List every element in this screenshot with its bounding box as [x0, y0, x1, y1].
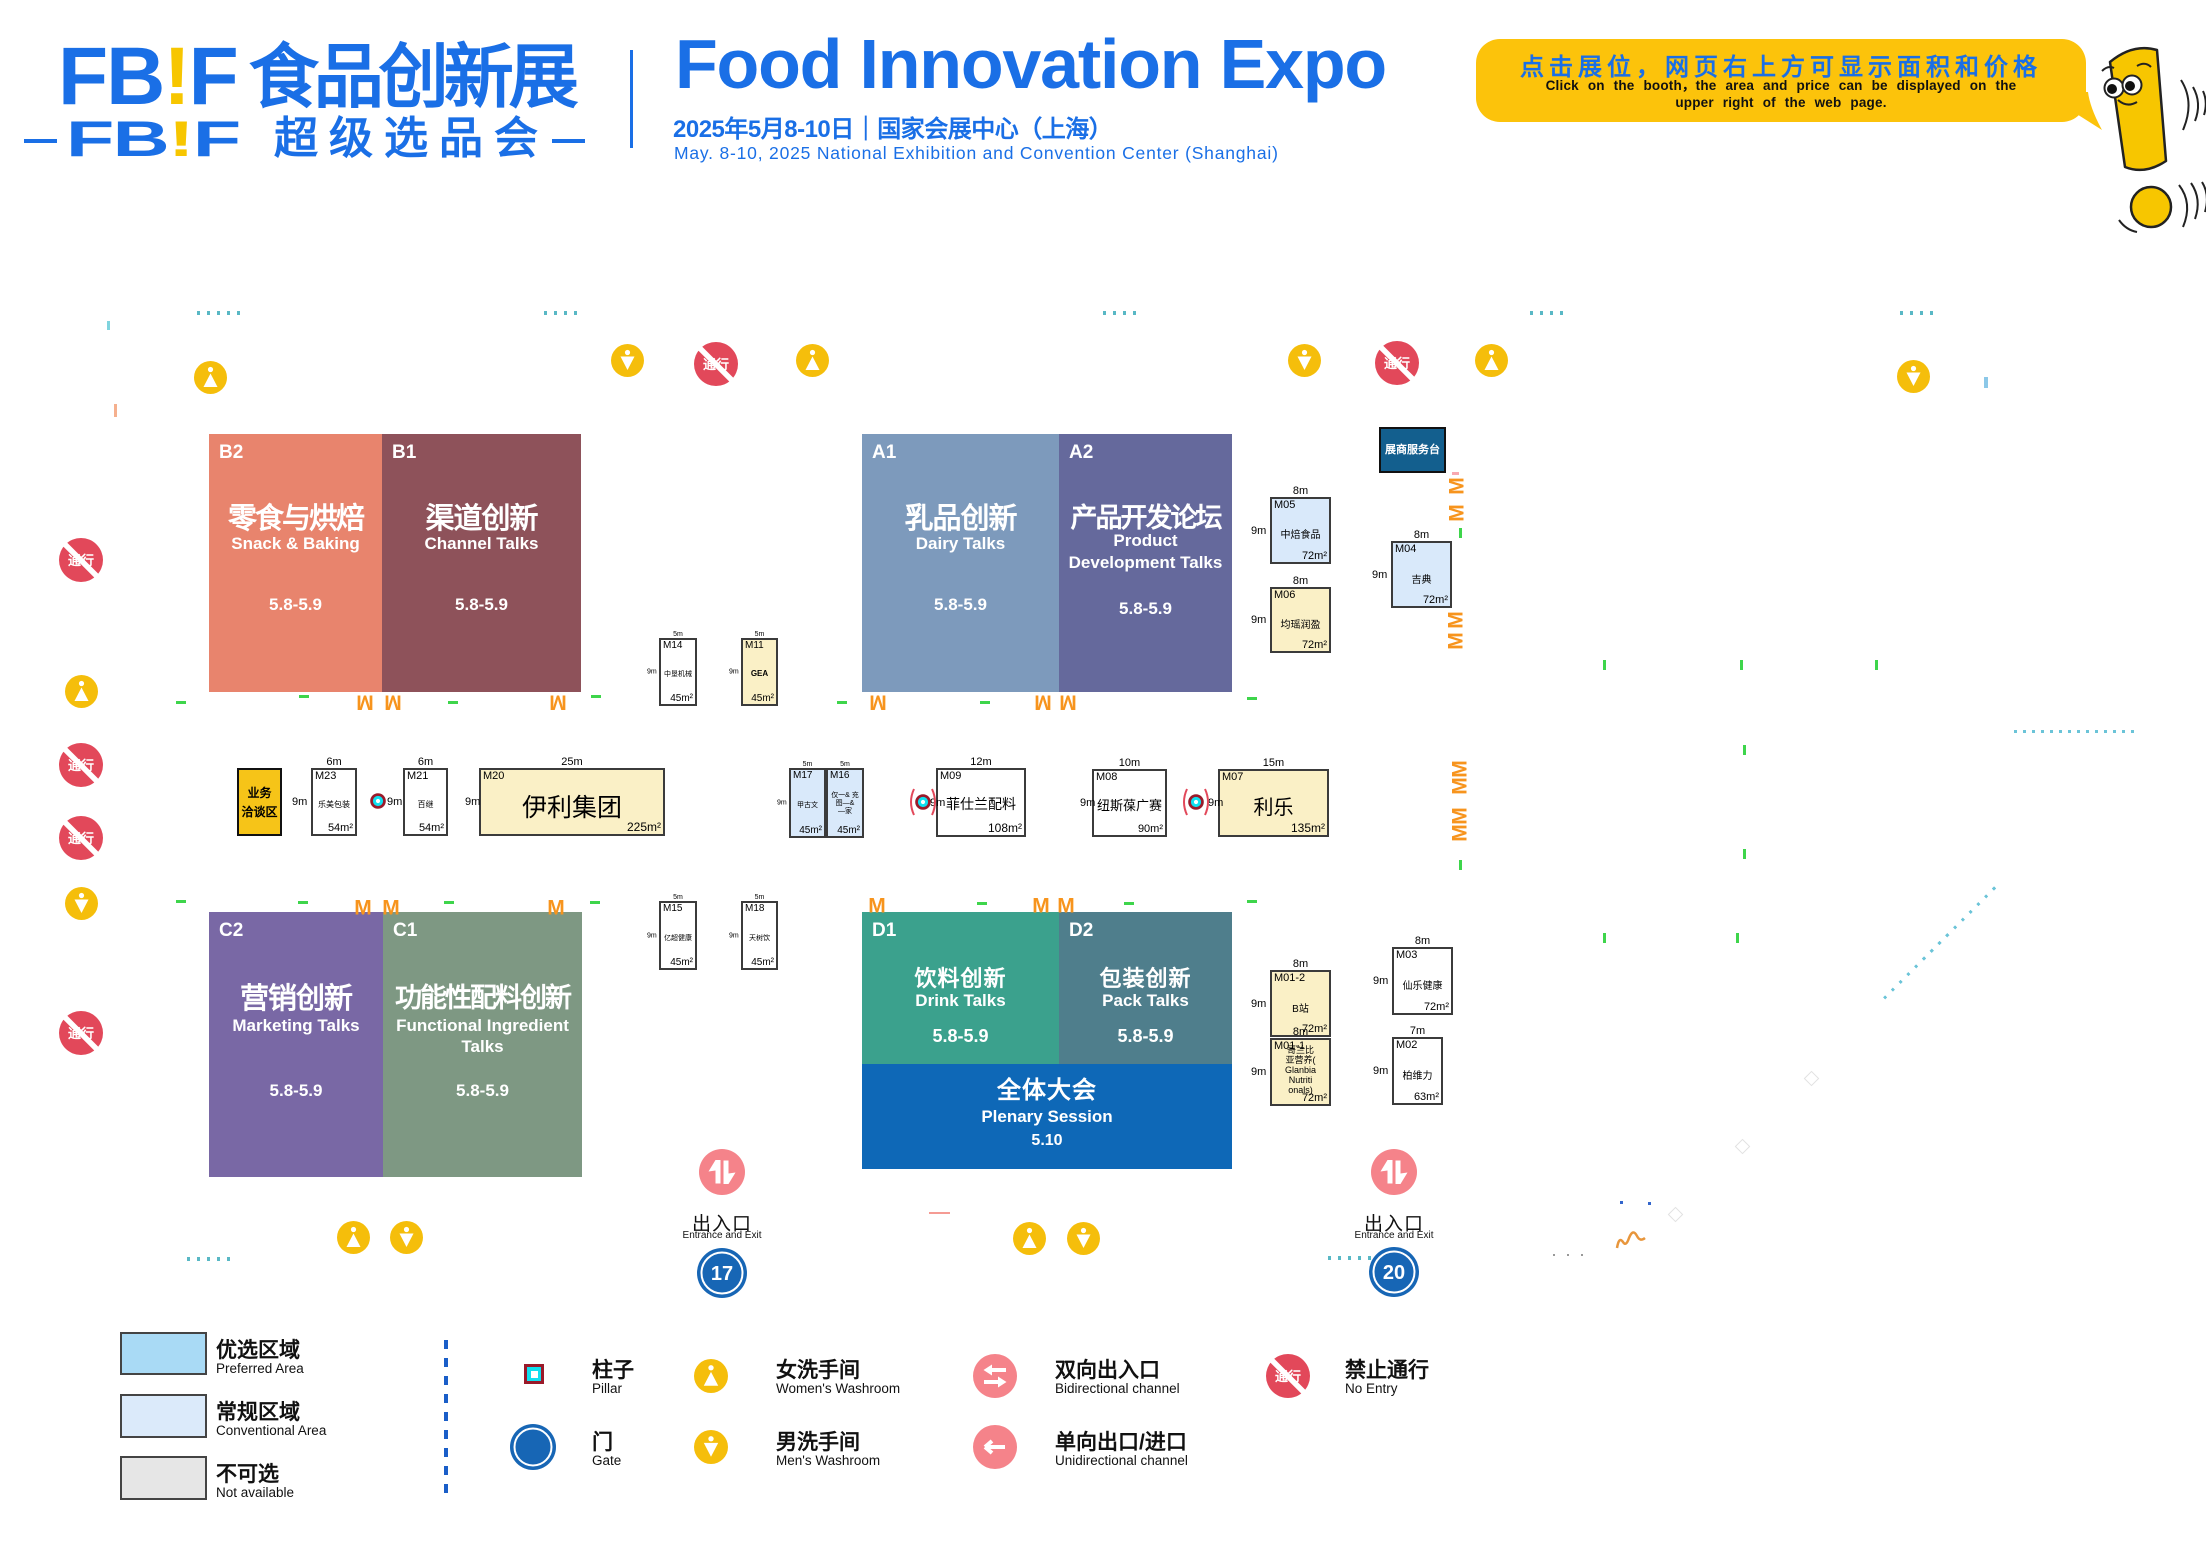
svg-text:17: 17 [711, 1263, 733, 1285]
svg-text:20: 20 [1383, 1262, 1405, 1284]
